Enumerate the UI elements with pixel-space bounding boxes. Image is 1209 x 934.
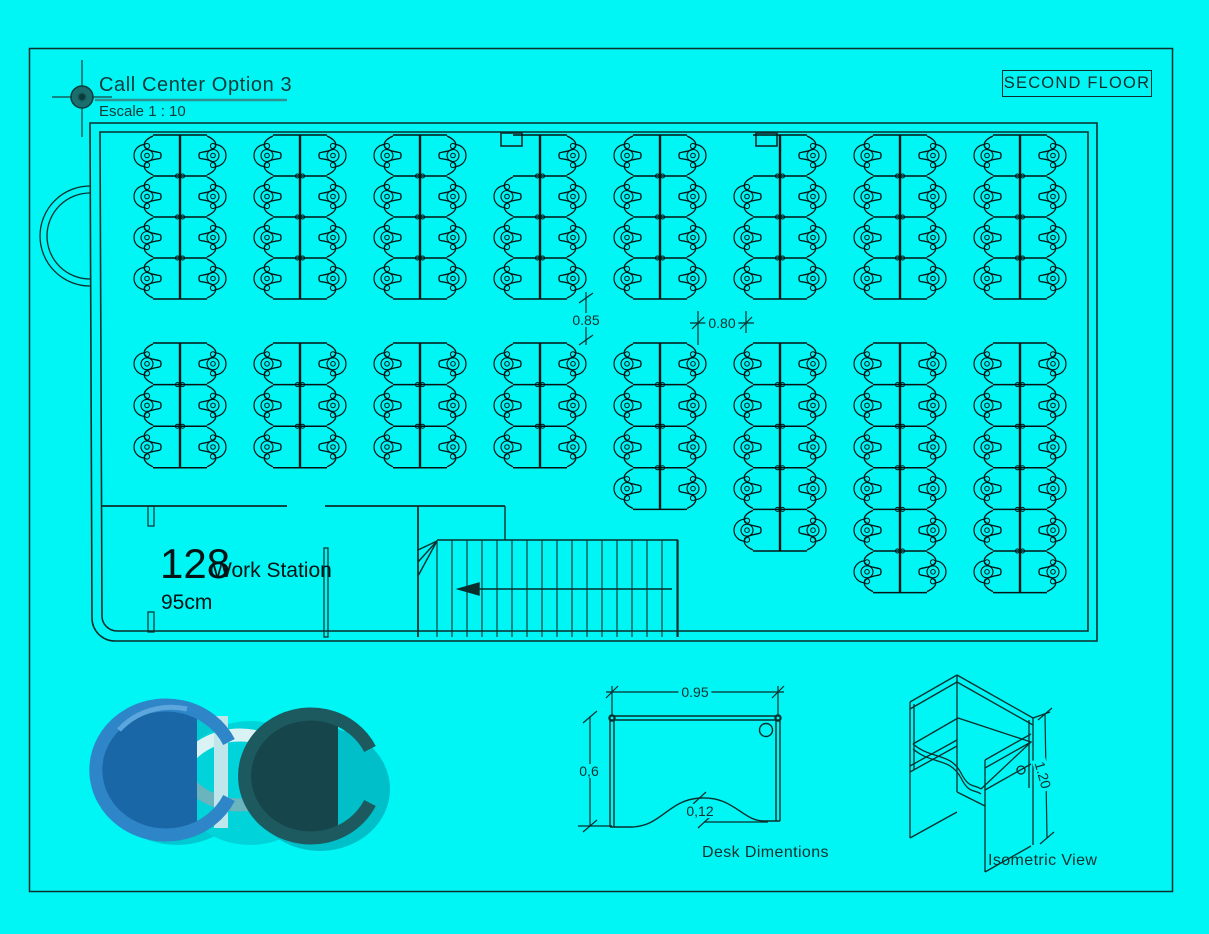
- cdc-logo: [96, 705, 390, 851]
- scale-note: Escale 1 : 10: [99, 104, 186, 119]
- desk-diagram-caption: Desk Dimentions: [702, 845, 829, 861]
- isometric-caption: Isometric View: [988, 853, 1097, 869]
- dim-desk-depth: 0,6: [576, 764, 601, 778]
- drawing-title: Call Center Option 3: [99, 75, 292, 95]
- cad-sheet: Call Center Option 3 Escale 1 : 10 SECON…: [0, 0, 1209, 934]
- floor-plan-drawing: [0, 0, 1209, 934]
- desk-diagram: [578, 686, 784, 832]
- dim-aisle-width: 0.80: [705, 316, 738, 330]
- grommet: [760, 724, 773, 737]
- dim-cluster-gap: 0.85: [569, 313, 602, 327]
- dim-desk-width: 0.95: [678, 685, 711, 699]
- crosshair-icon: [52, 60, 112, 137]
- workstation-label: Work Station: [212, 560, 332, 581]
- stair-direction-arrow: [458, 583, 672, 595]
- floor-label: SECOND FLOOR: [1002, 70, 1152, 97]
- isometric-view: [910, 675, 1054, 872]
- staircase: [418, 506, 678, 637]
- dim-curve-depth: 0,12: [683, 804, 716, 818]
- desk-size-note: 95cm: [161, 592, 212, 613]
